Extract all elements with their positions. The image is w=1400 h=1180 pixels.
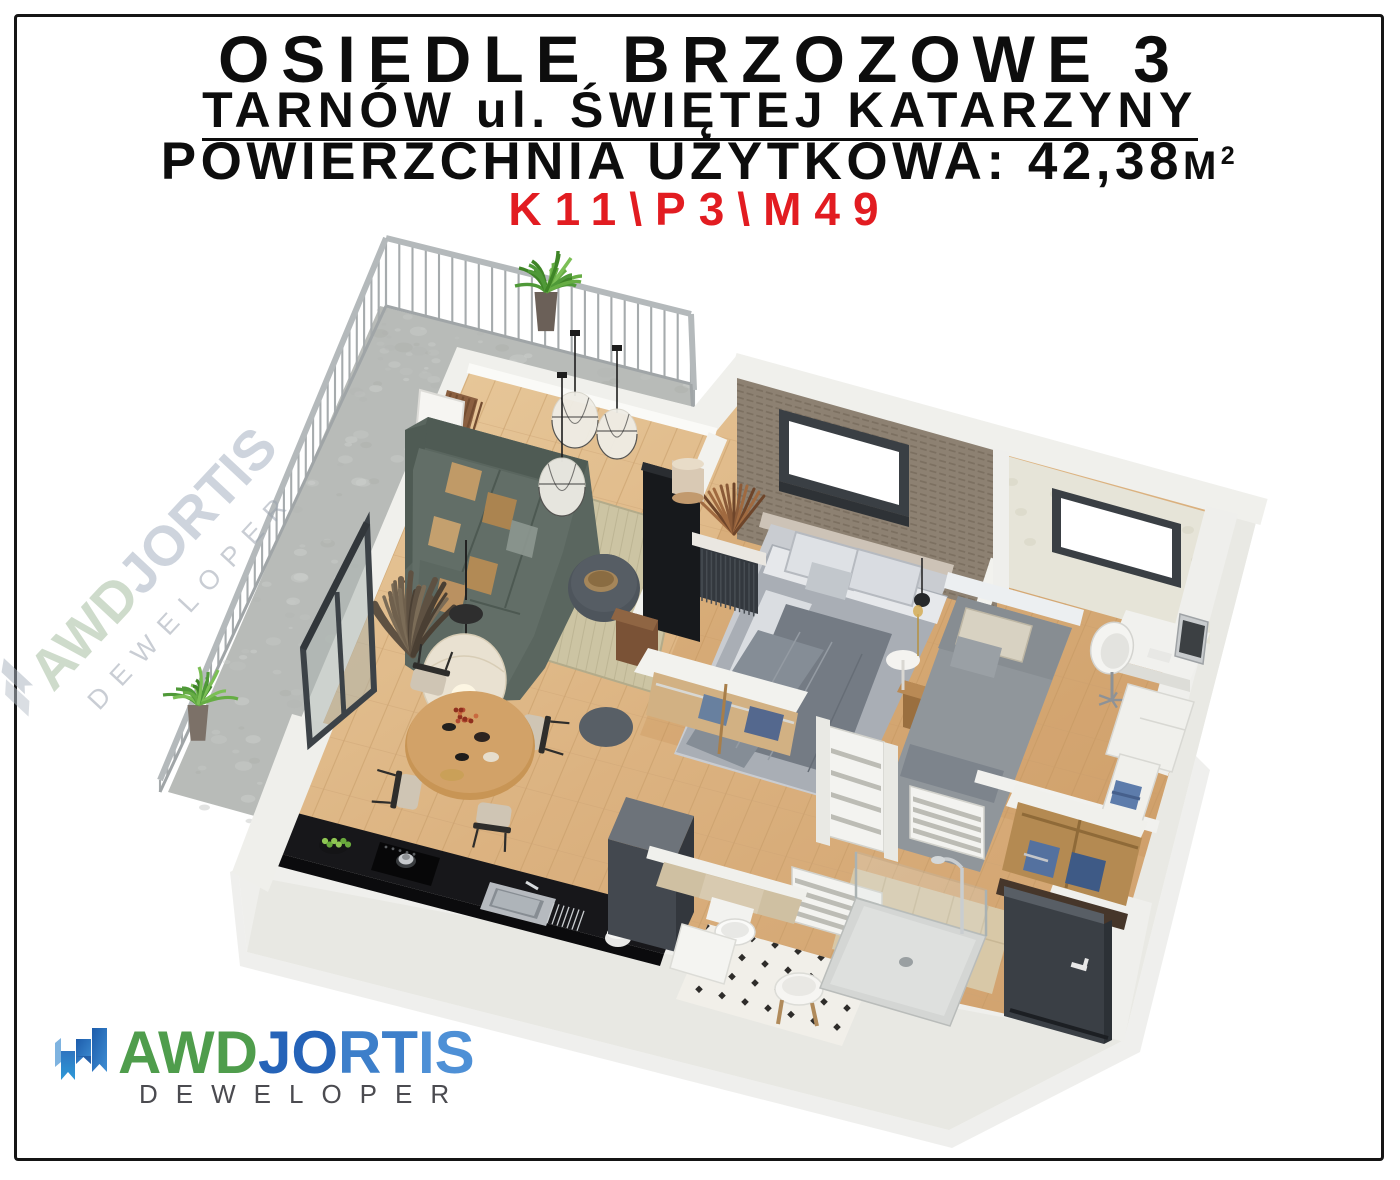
svg-text:AWDJORTIS: AWDJORTIS: [118, 1019, 475, 1086]
svg-text:DEWELOPER: DEWELOPER: [139, 1079, 467, 1109]
